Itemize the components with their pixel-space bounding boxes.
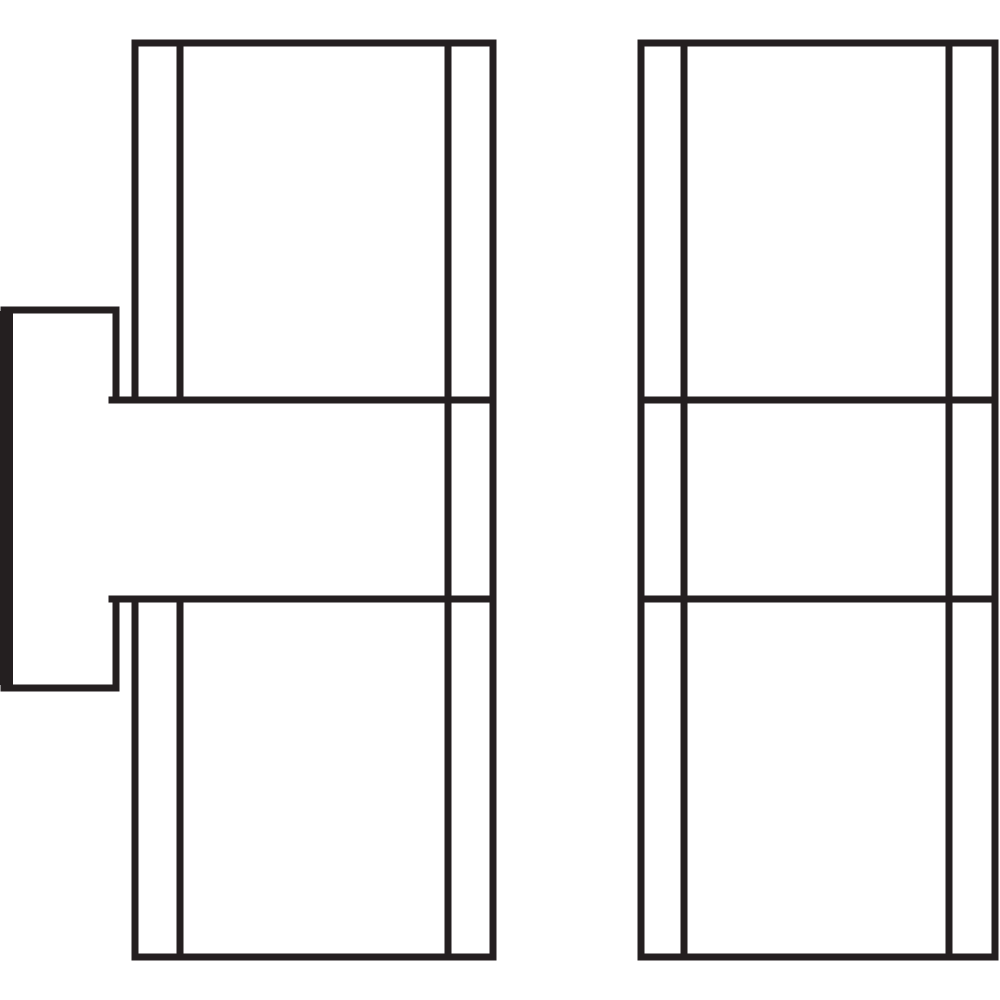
technical-cross-section-diagram bbox=[0, 0, 1000, 1000]
diagram-canvas bbox=[0, 0, 1000, 1000]
diagram-background bbox=[0, 0, 1000, 1000]
tab-thick-left-edge bbox=[0, 311, 13, 685]
